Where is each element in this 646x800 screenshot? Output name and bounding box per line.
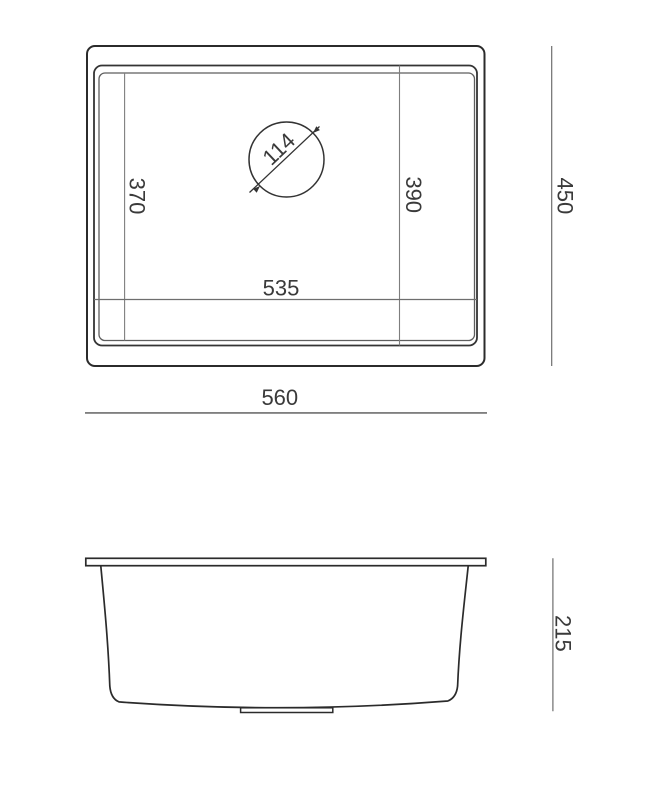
svg-text:390: 390 [401,176,426,213]
svg-text:450: 450 [552,178,577,215]
svg-text:215: 215 [550,615,575,652]
svg-text:535: 535 [263,275,300,300]
svg-text:370: 370 [125,178,150,215]
svg-text:560: 560 [261,385,298,410]
